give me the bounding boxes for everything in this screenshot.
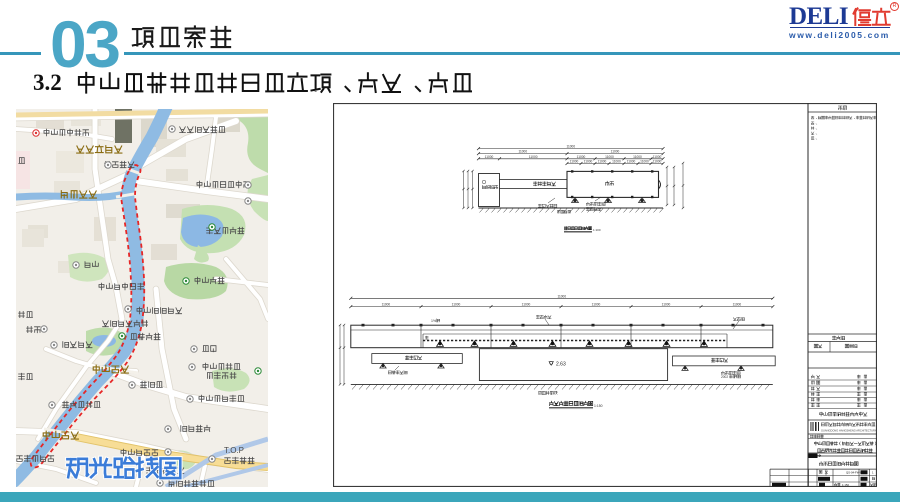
- svg-text:T.O.P: T.O.P: [224, 446, 244, 455]
- svg-text:11000: 11000: [485, 155, 494, 159]
- svg-text:11000: 11000: [577, 155, 586, 159]
- svg-text:11000: 11000: [733, 303, 742, 307]
- svg-text:2002: 2002: [721, 375, 728, 379]
- svg-text:11000: 11000: [611, 150, 620, 154]
- svg-text:11000: 11000: [592, 303, 601, 307]
- svg-text:1:150: 1:150: [594, 404, 603, 408]
- svg-text:11000: 11000: [627, 160, 636, 164]
- svg-text:11000: 11000: [598, 160, 607, 164]
- svg-text:11000: 11000: [612, 160, 621, 164]
- svg-text:11000: 11000: [382, 303, 391, 307]
- svg-text:GUANGDONG HANGSHENG ARCHITECTU: GUANGDONG HANGSHENG ARCHITECTURAL DESIGN…: [821, 429, 877, 433]
- svg-text:11000: 11000: [452, 303, 461, 307]
- svg-text:2.63: 2.63: [556, 362, 566, 368]
- svg-text:1:150: 1:150: [842, 483, 849, 487]
- svg-text:11000: 11000: [557, 294, 566, 298]
- svg-text:11000: 11000: [570, 160, 579, 164]
- svg-text:11000: 11000: [662, 303, 671, 307]
- svg-text:11000: 11000: [653, 155, 662, 159]
- svg-text:1%: 1%: [431, 319, 436, 323]
- svg-text:11000: 11000: [605, 155, 614, 159]
- svg-text:11000: 11000: [653, 160, 662, 164]
- svg-text:11000: 11000: [518, 150, 527, 154]
- svg-text:1:100: 1:100: [593, 228, 601, 232]
- svg-text:11000: 11000: [633, 155, 642, 159]
- svg-text:11000: 11000: [522, 303, 531, 307]
- svg-text:11000: 11000: [584, 160, 593, 164]
- svg-text:11000: 11000: [566, 145, 575, 149]
- svg-text:11000: 11000: [640, 160, 649, 164]
- svg-text:11000: 11000: [529, 155, 538, 159]
